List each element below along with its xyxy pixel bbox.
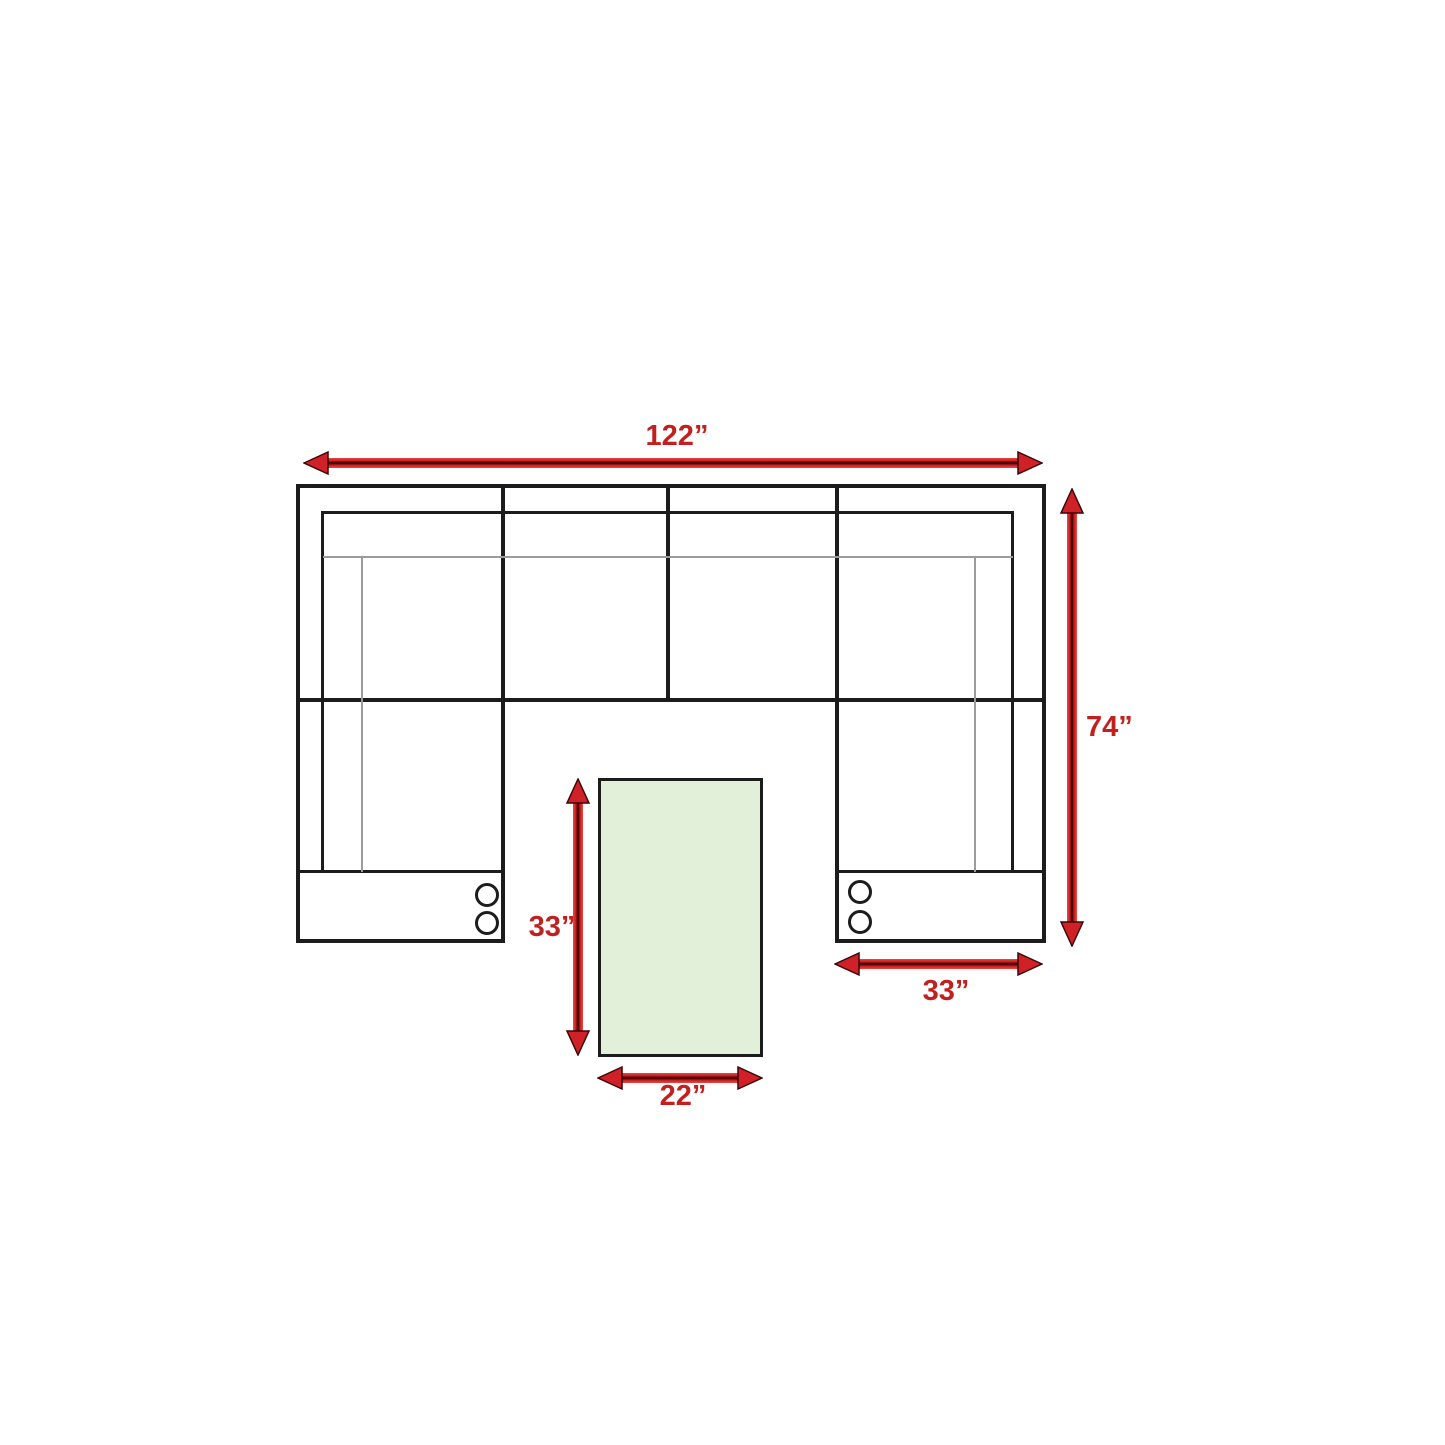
right-chaise-seam-line <box>974 557 976 872</box>
sofa-outer-left-edge <box>296 484 300 943</box>
backrest-inner-top-edge <box>321 511 1014 514</box>
right-console-cupholder-icon <box>848 880 872 904</box>
left-console-top-edge <box>296 870 505 873</box>
sofa-seat-front-line <box>296 698 1046 702</box>
sofa-outer-right-edge <box>1042 484 1046 943</box>
left-chaise-seam-line <box>361 557 363 872</box>
left-console-cupholder-icon <box>475 883 499 907</box>
ottoman-width-label: 22” <box>660 1081 707 1111</box>
left-console-cupholder-icon <box>475 911 499 935</box>
sofa-divider-right <box>835 484 839 943</box>
sofa-outer-top-edge <box>296 484 1046 488</box>
right-console-cupholder-icon <box>848 910 872 934</box>
sofa-divider-middle <box>666 484 670 702</box>
overall-depth-arrow-icon <box>1059 488 1085 947</box>
overall-width-arrow-icon <box>303 450 1043 476</box>
section-width-arrow-icon <box>834 951 1043 977</box>
ottoman-length-label: 33” <box>529 912 576 942</box>
backrest-inner-left-edge <box>321 511 324 872</box>
overall-depth-label: 74” <box>1086 712 1133 742</box>
seat-cushion-seam-line <box>323 556 1013 558</box>
sofa-divider-left <box>501 484 505 943</box>
left-console-bottom-edge <box>296 939 505 943</box>
ottoman-rect <box>598 778 763 1057</box>
right-console-top-edge <box>835 870 1046 873</box>
floor-plan-diagram: 122” 74” 33” 33” 22” <box>0 0 1445 1445</box>
backrest-inner-right-edge <box>1011 511 1014 872</box>
overall-width-label: 122” <box>646 421 709 451</box>
section-width-label: 33” <box>923 976 970 1006</box>
right-console-bottom-edge <box>835 939 1046 943</box>
